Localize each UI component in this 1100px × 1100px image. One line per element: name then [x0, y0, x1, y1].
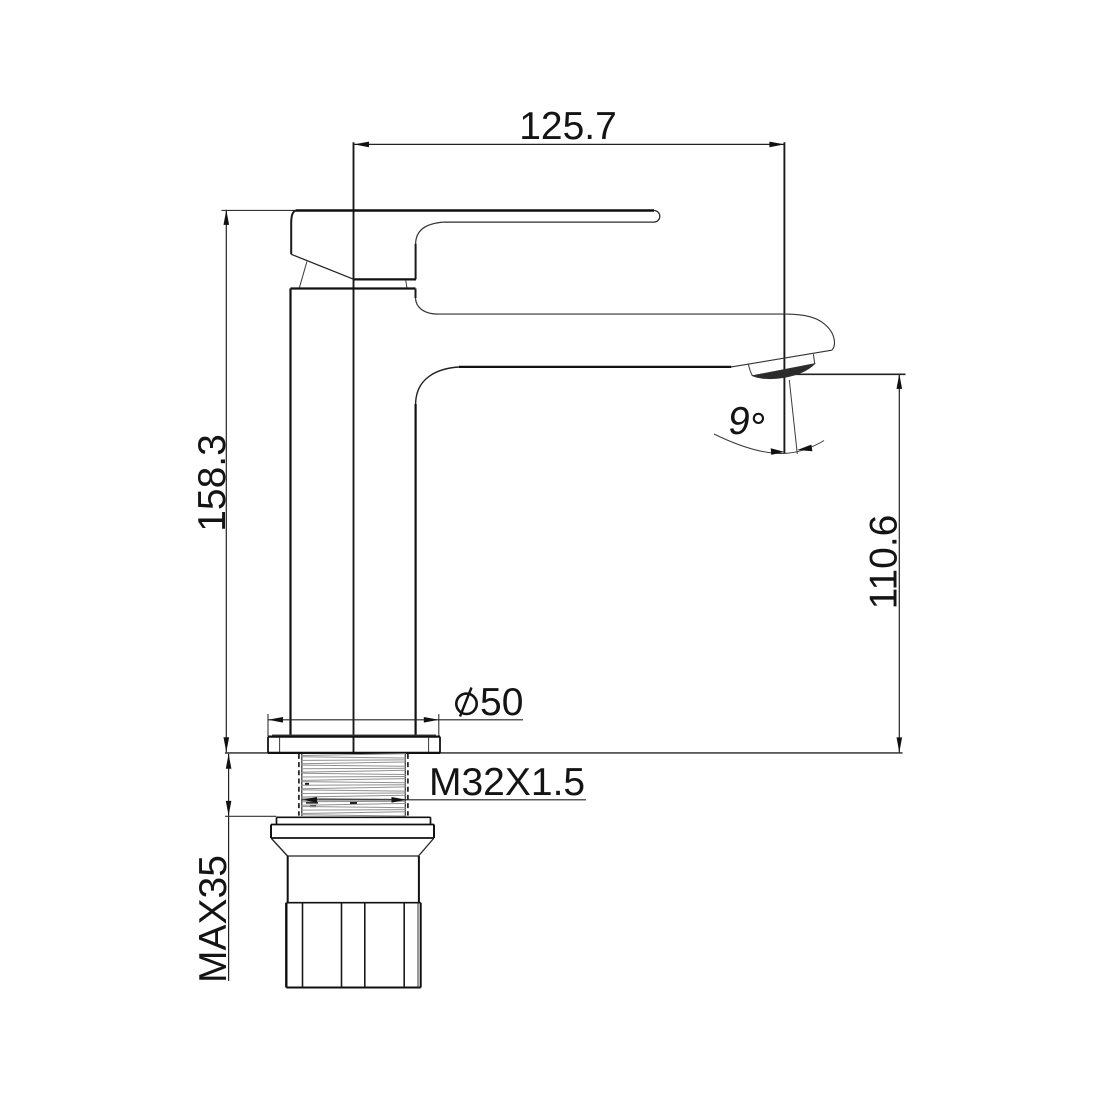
- svg-text:125.7: 125.7: [519, 105, 617, 148]
- svg-text:M32X1.5: M32X1.5: [429, 761, 585, 804]
- svg-text:158.3: 158.3: [191, 434, 234, 532]
- svg-text:MAX35: MAX35: [192, 855, 235, 983]
- svg-text:110.6: 110.6: [863, 515, 906, 610]
- svg-text:50: 50: [480, 681, 523, 724]
